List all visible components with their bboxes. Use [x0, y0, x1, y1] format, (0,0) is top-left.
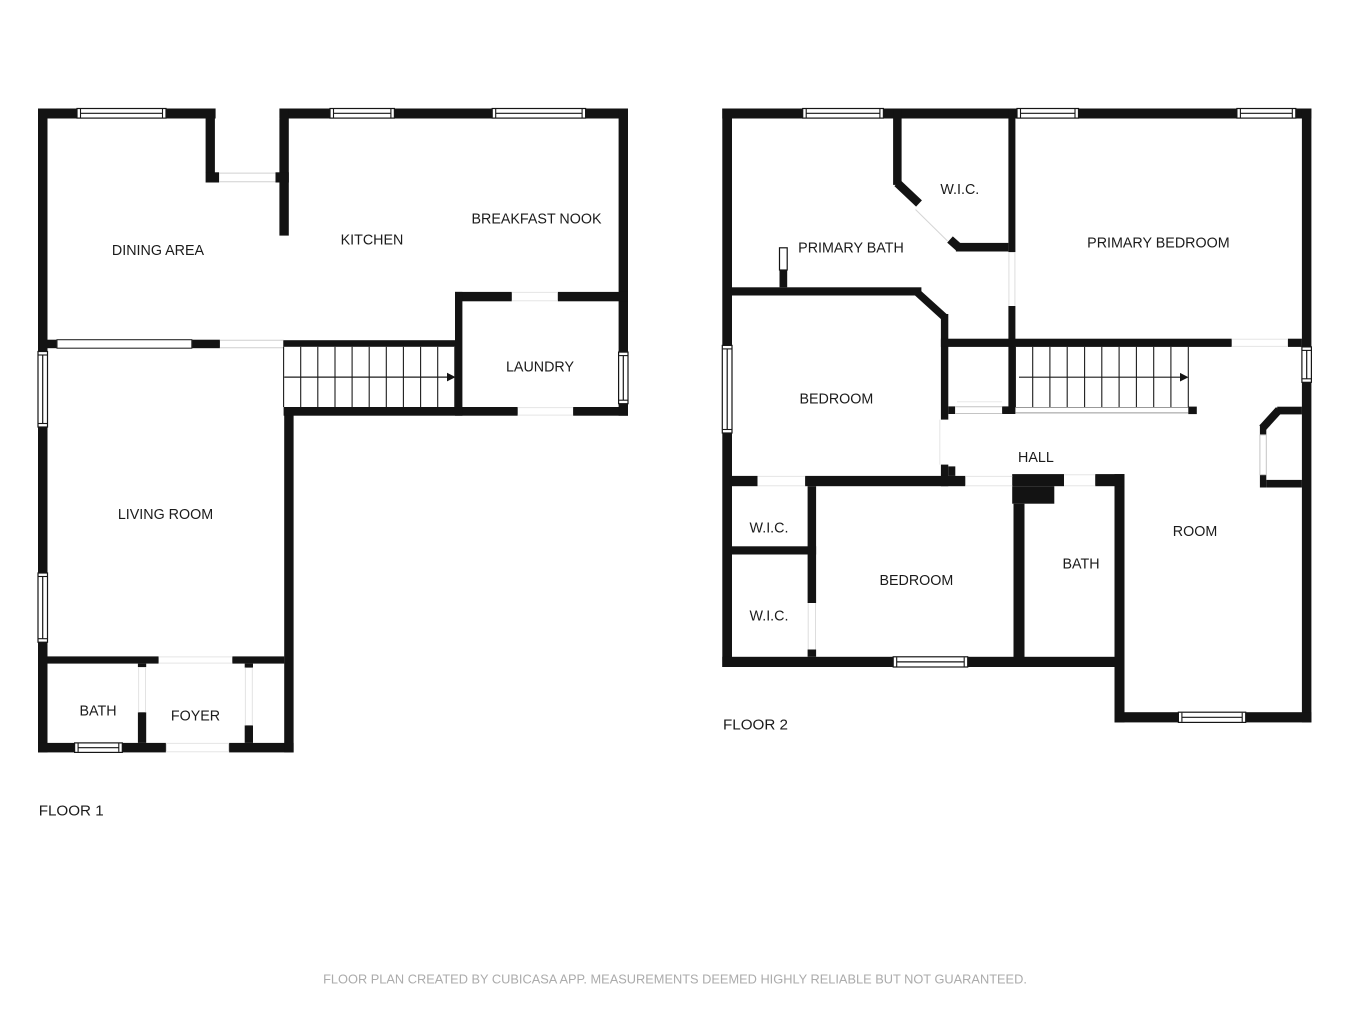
svg-text:BREAKFAST NOOK: BREAKFAST NOOK: [471, 212, 601, 228]
svg-text:FLOOR 2: FLOOR 2: [723, 717, 788, 734]
svg-text:W.I.C.: W.I.C.: [940, 182, 979, 198]
svg-text:PRIMARY BEDROOM: PRIMARY BEDROOM: [1087, 235, 1229, 251]
svg-text:PRIMARY BATH: PRIMARY BATH: [798, 240, 904, 256]
svg-text:DINING AREA: DINING AREA: [112, 243, 205, 259]
svg-text:FLOOR 1: FLOOR 1: [39, 803, 104, 820]
svg-text:BEDROOM: BEDROOM: [879, 573, 953, 589]
svg-text:LIVING ROOM: LIVING ROOM: [118, 507, 213, 523]
svg-text:KITCHEN: KITCHEN: [341, 233, 404, 249]
svg-text:FLOOR PLAN CREATED BY CUBICASA: FLOOR PLAN CREATED BY CUBICASA APP. MEAS…: [323, 971, 1027, 986]
svg-text:HALL: HALL: [1018, 450, 1054, 466]
svg-text:ROOM: ROOM: [1173, 524, 1217, 540]
svg-text:FOYER: FOYER: [171, 709, 220, 725]
svg-text:LAUNDRY: LAUNDRY: [506, 360, 575, 376]
svg-text:W.I.C.: W.I.C.: [750, 520, 789, 536]
svg-text:BATH: BATH: [1062, 557, 1099, 573]
svg-text:W.I.C.: W.I.C.: [750, 608, 789, 624]
svg-text:BATH: BATH: [79, 703, 116, 719]
svg-text:BEDROOM: BEDROOM: [799, 392, 873, 408]
